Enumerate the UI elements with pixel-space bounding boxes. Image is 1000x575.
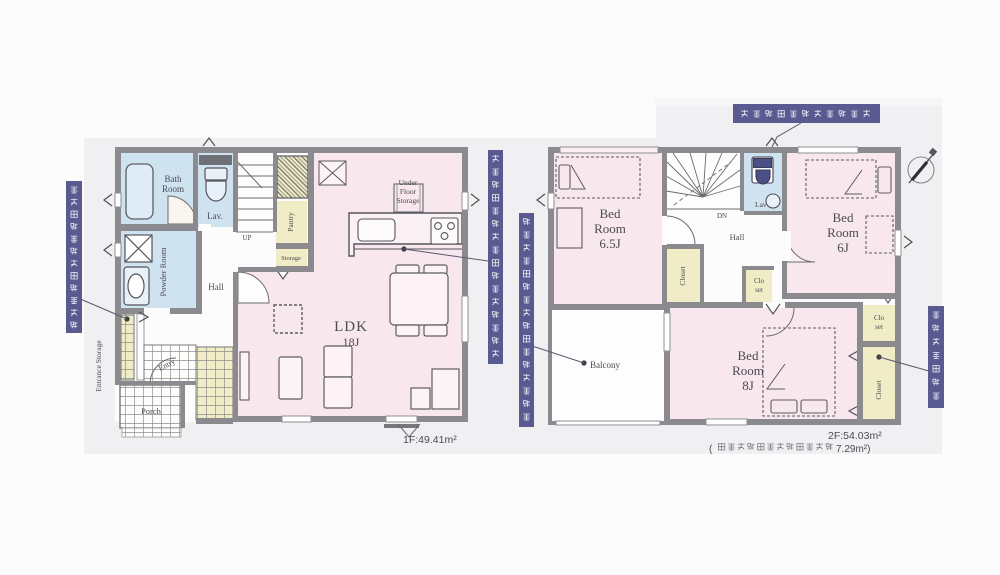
svg-text:Under: Under [399, 178, 418, 187]
svg-text:Lav.: Lav. [207, 211, 223, 221]
svg-text:Powder Room: Powder Room [158, 247, 168, 296]
svg-text:Lav: Lav [755, 200, 767, 209]
svg-text:set: set [875, 323, 883, 331]
svg-text:Storage: Storage [281, 255, 301, 262]
svg-text:Room: Room [594, 221, 626, 236]
svg-text:8J: 8J [742, 378, 754, 393]
svg-text:DN: DN [717, 212, 727, 220]
svg-text:Hall: Hall [208, 282, 224, 292]
svg-text:Storage: Storage [397, 196, 421, 205]
svg-text:Balcony: Balcony [590, 360, 620, 370]
svg-text:Hall: Hall [730, 232, 745, 242]
svg-text:set: set [755, 286, 763, 294]
svg-text:Clo: Clo [874, 314, 885, 322]
svg-text:UP: UP [243, 234, 252, 242]
svg-text:Bath: Bath [165, 174, 182, 184]
svg-text:Clo: Clo [754, 277, 765, 285]
svg-text:LDK: LDK [334, 319, 368, 335]
svg-text:6.5J: 6.5J [599, 236, 620, 251]
svg-text:6J: 6J [837, 240, 849, 255]
svg-text:Room: Room [162, 184, 184, 194]
svg-text:Closet: Closet [874, 380, 883, 400]
svg-text:Porch: Porch [141, 406, 162, 416]
svg-text:Bed: Bed [600, 206, 621, 221]
svg-text:Entrance Storage: Entrance Storage [94, 340, 103, 392]
svg-text:Bed: Bed [833, 210, 854, 225]
svg-text:1F:49.41m²: 1F:49.41m² [403, 434, 457, 446]
svg-text:2F:54.03m²: 2F:54.03m² [828, 430, 882, 442]
svg-text:Pantry: Pantry [286, 212, 295, 232]
svg-text:Room: Room [732, 363, 764, 378]
svg-text:Room: Room [827, 225, 859, 240]
svg-text:Closet: Closet [678, 266, 687, 286]
svg-text:Bed: Bed [738, 348, 759, 363]
svg-text:7.29m²): 7.29m²) [836, 444, 870, 455]
svg-text:Floor: Floor [400, 187, 417, 196]
